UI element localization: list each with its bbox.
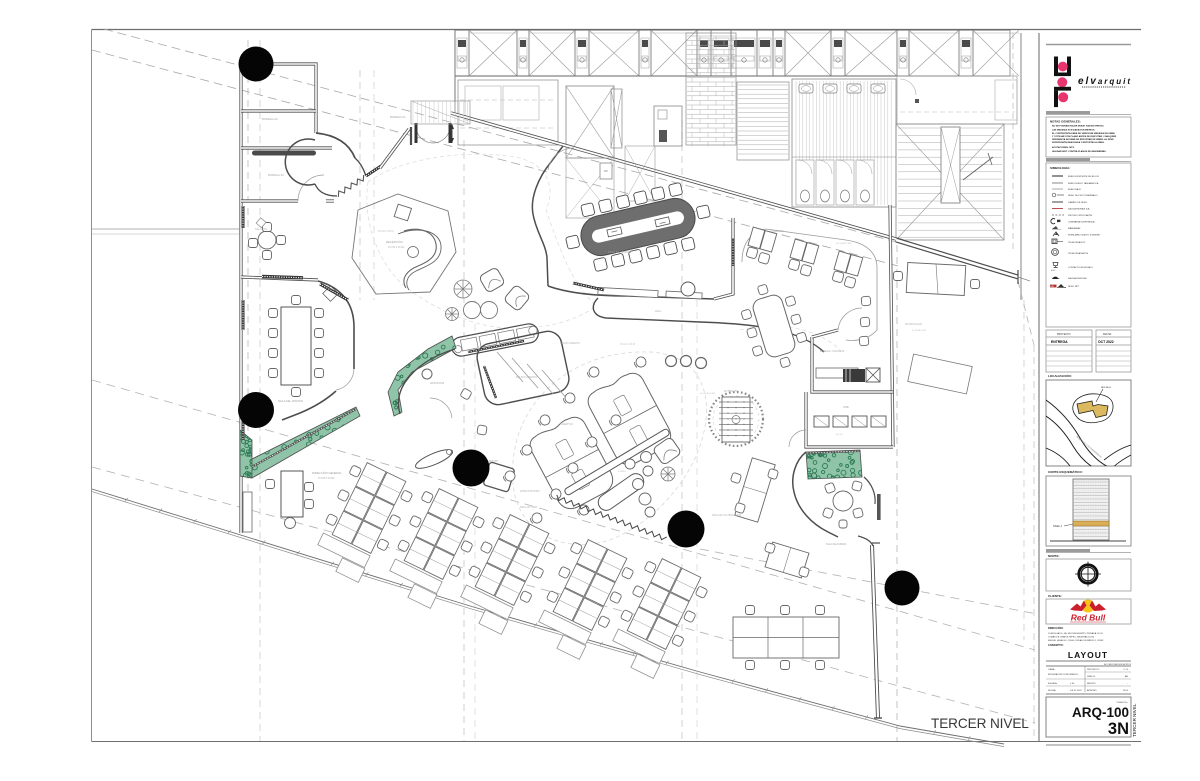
svg-text:PROYECCIÓN PLAFÓN: PROYECCIÓN PLAFÓN [1068, 214, 1092, 217]
svg-text:APROBÓ:: APROBÓ: [1087, 689, 1097, 692]
svg-text:BODEGA 03: BODEGA 03 [268, 173, 284, 177]
svg-text:SITE: SITE [843, 405, 849, 409]
svg-text:ACOTACIONES EN METROS: ACOTACIONES EN METROS [1104, 663, 1132, 666]
svg-text:CONCEPTO:: CONCEPTO: [1048, 643, 1064, 647]
svg-text:DIRECCIÓN GENERAL: DIRECCIÓN GENERAL [312, 470, 342, 475]
svg-text:H:2.50 A:16 M2: H:2.50 A:16 M2 [388, 246, 405, 249]
svg-text:EL CONTRATISTA DEBE DE VERIFIC: EL CONTRATISTA DEBE DE VERIFICAR MEDIDAS… [1052, 132, 1115, 135]
svg-text:MAMPARAS: MAMPARAS [1068, 227, 1081, 230]
svg-text:RCG: RCG [1123, 690, 1128, 692]
svg-text:CREATIVO: CREATIVO [560, 422, 573, 426]
svg-text:SALIDA ESPECIAL: SALIDA ESPECIAL [1068, 277, 1088, 280]
svg-text:LAYOUT: LAYOUT [1068, 650, 1108, 660]
svg-text:FECHA:: FECHA: [1048, 689, 1056, 692]
svg-text:WORKSTATIONS: WORKSTATIONS [520, 490, 540, 493]
svg-text:elvarquit: elvarquit [1078, 76, 1130, 87]
svg-text:TELEFONÍA/VOZ: TELEFONÍA/VOZ [1068, 241, 1086, 244]
svg-text:CLIENTE:: CLIENTE: [1048, 594, 1062, 598]
svg-text:PLANO No.: PLANO No. [1117, 701, 1129, 704]
svg-text:MESA DE TRAB.: MESA DE TRAB. [520, 506, 538, 509]
svg-text:ÁREA DE COLABORACIÓN: ÁREA DE COLABORACIÓN [712, 514, 741, 517]
svg-text:NO SE PODRÁN HACER MODIF. S/AV: NO SE PODRÁN HACER MODIF. S/AVISO PREVIO… [1052, 125, 1104, 128]
svg-text:NORTE:: NORTE: [1048, 554, 1060, 558]
svg-text:HALL: HALL [655, 309, 662, 313]
svg-text:SALA JTS.: SALA JTS. [255, 227, 268, 231]
svg-text:A HD: A HD [1051, 269, 1056, 272]
svg-text:LOCALIZACIÓN:: LOCALIZACIÓN: [1048, 373, 1072, 378]
svg-text:SM: SM [604, 170, 608, 173]
svg-text:NIVEL DE PISO TERMINADO: NIVEL DE PISO TERMINADO [1068, 194, 1098, 197]
svg-text:BODEGA / COCINETA: BODEGA / COCINETA [820, 350, 845, 353]
svg-text:BOOTH: BOOTH [489, 460, 498, 463]
svg-text:NOTAS GENERALES:: NOTAS GENERALES: [1050, 120, 1081, 124]
svg-text:BODEGA 01: BODEGA 01 [390, 115, 406, 119]
svg-text:VALIDAR INST. CONTRA PLANOS DE: VALIDAR INST. CONTRA PLANOS DE INGENIERÍ… [1052, 150, 1107, 153]
svg-text:FUTBOLITO: FUTBOLITO [724, 390, 738, 393]
svg-text:JOSÉ ELÍAS S., AV. RÍO MISSISS: JOSÉ ELÍAS S., AV. RÍO MISSISSIPPI, PRIV… [1048, 632, 1104, 635]
svg-text:TERCER NIVEL: TERCER NIVEL [931, 716, 1029, 731]
svg-text:LUMINARIA SUSPENDIDA: LUMINARIA SUSPENDIDA [1068, 221, 1095, 224]
svg-text:OBRA:: OBRA: [1048, 668, 1055, 671]
svg-text:SALA DE ESPERA: SALA DE ESPERA [826, 543, 847, 546]
svg-text:CORTE ESQUEMÁTICO:: CORTE ESQUEMÁTICO: [1048, 469, 1083, 474]
svg-text:PROYECTO:: PROYECTO: [1087, 669, 1100, 671]
svg-text:MONSTACAGE: MONSTACAGE [905, 323, 922, 326]
svg-text:PROYECTO:: PROYECTO: [1057, 333, 1071, 336]
svg-text:Y COTEJAR CON PLANO ANTES DE E: Y COTEJAR CON PLANO ANTES DE EJECUTAR, C… [1052, 135, 1117, 138]
svg-text:MURO BAJO: MURO BAJO [1068, 188, 1081, 191]
svg-text:ESCALA:: ESCALA: [1048, 682, 1058, 685]
svg-text:DIFERENCIA SE DEBE DE REPORTAR: DIFERENCIA SE DEBE DE REPORTAR DE INMED.… [1052, 138, 1114, 141]
svg-text:LOMAS DE CHAPULTEPEC, PALMITAS: LOMAS DE CHAPULTEPEC, PALMITAS 11000 [1048, 636, 1095, 639]
svg-text:3N: 3N [1108, 720, 1129, 738]
svg-text:REVISÓ:: REVISÓ: [1087, 682, 1096, 685]
svg-text:Red Bull: Red Bull [1071, 613, 1106, 623]
svg-text:MURO NUEVO TABLARROCA: MURO NUEVO TABLARROCA [1068, 182, 1099, 185]
svg-text:SIMBOLOGÍA:: SIMBOLOGÍA: [1050, 165, 1070, 170]
svg-text:FECHA:: FECHA: [1103, 333, 1112, 336]
svg-text:ENTREGA: ENTREGA [1051, 340, 1068, 344]
svg-text:COMEDOR: COMEDOR [770, 229, 784, 233]
svg-text:BARRA: BARRA [486, 330, 494, 333]
svg-text:EQUIPO ABIERTO: EQUIPO ABIERTO [560, 342, 580, 345]
svg-text:SUPERVISIÓN REALIZADA Y REPORT: SUPERVISIÓN REALIZADA Y REPORTES A OBRA. [1052, 141, 1105, 144]
svg-text:H:2.50 A:20 M2: H:2.50 A:20 M2 [700, 392, 716, 395]
svg-text:SALA DE JUNTAS: SALA DE JUNTAS [278, 399, 303, 403]
svg-text:ACOTACIONES: MTS.: ACOTACIONES: MTS. [1052, 146, 1075, 149]
svg-text:LAS MEDIDAS SON DADAS EN METRO: LAS MEDIDAS SON DADAS EN METROS. [1052, 129, 1095, 132]
svg-text:OCT 2022: OCT 2022 [1098, 340, 1114, 344]
svg-text:TERCER NIVEL: TERCER NIVEL [1132, 703, 1137, 737]
svg-text:MIGUEL HIDALGO, 11560 CIUDAD D: MIGUEL HIDALGO, 11560 CIUDAD DE MÉXICO, … [1048, 639, 1104, 642]
svg-text:H:2.50 A:8 M2: H:2.50 A:8 M2 [912, 329, 927, 332]
svg-text:RED BULL: RED BULL [1101, 387, 1112, 389]
svg-text:NIVEL 3: NIVEL 3 [1053, 525, 1062, 528]
svg-text:TELEFONÍA/DATOS: TELEFONÍA/DATOS [1068, 252, 1089, 255]
svg-text:PLAZA 4.50 M: PLAZA 4.50 M [378, 230, 393, 233]
svg-text:H:2.50 A:22 M2: H:2.50 A:22 M2 [836, 242, 852, 245]
svg-text:MURO EXISTENTE DE BLOCK: MURO EXISTENTE DE BLOCK [1068, 176, 1100, 178]
svg-text:INTEGRACIÓN CORPORATIVO: INTEGRACIÓN CORPORATIVO [1048, 673, 1079, 676]
svg-text:H:2.50: H:2.50 [836, 434, 843, 436]
svg-text:WAR ROOM: WAR ROOM [430, 382, 444, 385]
svg-text:BODEGA 02: BODEGA 02 [262, 117, 278, 121]
svg-text:H:2.50 A:10 M2: H:2.50 A:10 M2 [318, 477, 335, 480]
svg-text:RECEPCIÓN: RECEPCIÓN [386, 239, 403, 244]
svg-text:NIVEL NPT: NIVEL NPT [1068, 286, 1080, 288]
svg-text:CAMBIO DE NIVEL: CAMBIO DE NIVEL [1068, 201, 1088, 204]
svg-text:ARQ-100: ARQ-100 [1072, 705, 1129, 720]
svg-text:PLAZA 4.50 M: PLAZA 4.50 M [620, 343, 635, 346]
svg-text:SALIDA HIDRÁULICA: SALIDA HIDRÁULICA [1068, 208, 1090, 211]
svg-text:DIBUJO:: DIBUJO: [1087, 676, 1096, 678]
svg-text:EQUIPO ABIERTO: EQUIPO ABIERTO [516, 376, 537, 379]
svg-text:CONTACTO REGULADO: CONTACTO REGULADO [1068, 266, 1093, 269]
svg-text:SALA DE JUNTAS: SALA DE JUNTAS [608, 250, 631, 254]
svg-text:JULIO 2022: JULIO 2022 [1070, 690, 1082, 692]
svg-text:C+S: C+S [1124, 669, 1129, 671]
svg-text:8 PERS: 8 PERS [618, 471, 626, 473]
svg-text:AR: AR [1125, 675, 1128, 678]
svg-text:MOBILIARIO NUEVO S/DISEÑO: MOBILIARIO NUEVO S/DISEÑO [1068, 234, 1101, 237]
